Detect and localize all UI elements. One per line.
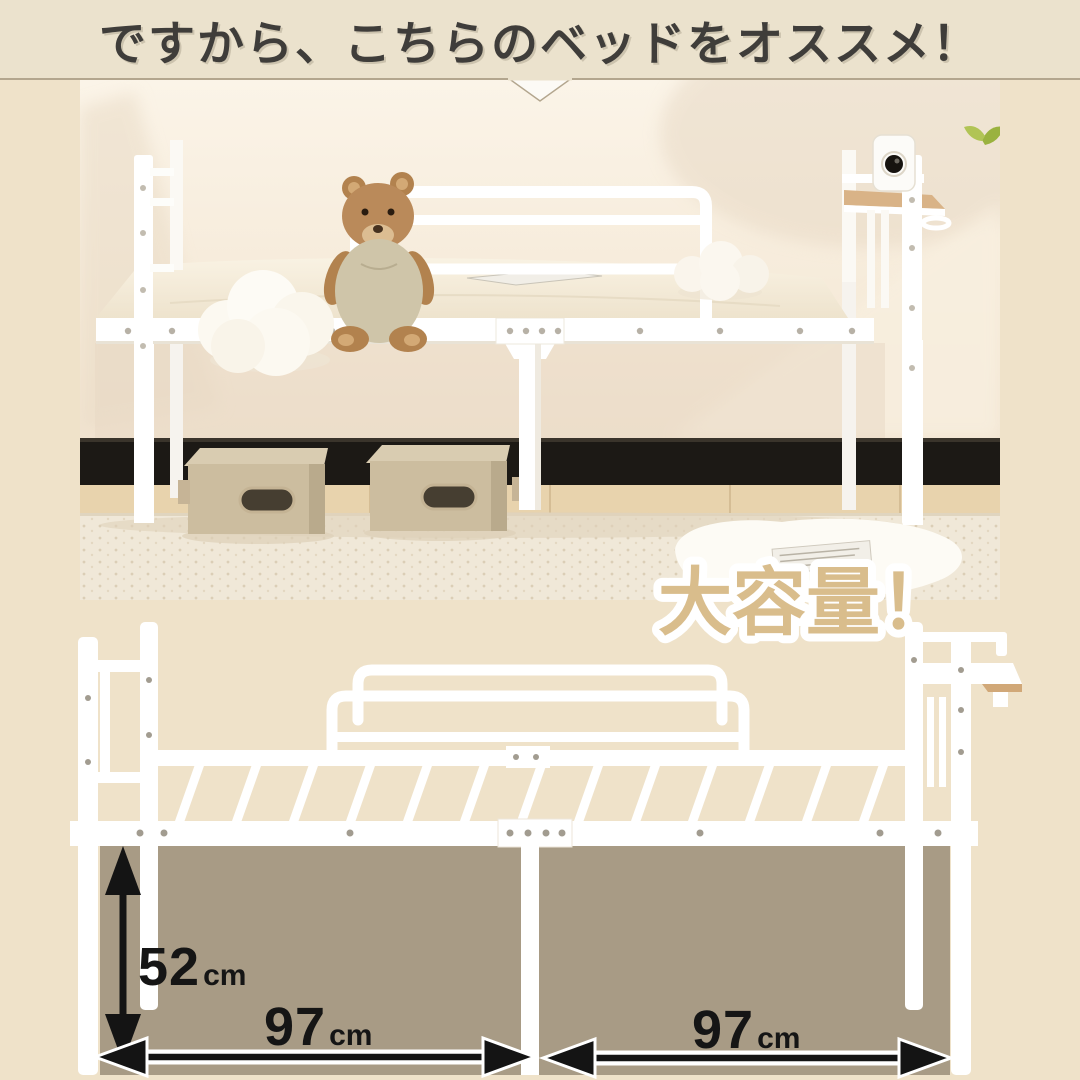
deck-center-plate [496, 318, 564, 344]
width-left-value: 97 [264, 996, 326, 1058]
header-band: ですから、こちらのベッドをオススメ！ [0, 0, 1080, 80]
capacity-badge-text: 大容量！ [658, 561, 954, 644]
diagram-center-leg [521, 846, 539, 1075]
width-label-right: 97cm [692, 999, 800, 1061]
height-label: 52cm [138, 936, 246, 998]
height-unit: cm [203, 959, 246, 993]
product-photo [80, 78, 1000, 600]
dimension-diagram [0, 600, 1080, 1080]
product-ad-page: ですから、こちらのベッドをオススメ！ [0, 0, 1080, 1080]
diagram-headboard-slat [100, 666, 110, 778]
diagram-back-center-plate [506, 746, 550, 768]
width-right-unit: cm [757, 1022, 800, 1056]
speech-tail-triangle [508, 78, 572, 101]
diagram-footboard-slat2 [939, 697, 946, 787]
storage-box-left [178, 448, 334, 544]
baby-monitor-camera [873, 135, 915, 191]
height-value: 52 [138, 936, 200, 998]
diagram-shelf-bracket [993, 692, 1008, 707]
diagram-footboard-slat [927, 697, 934, 787]
capacity-badge: 大容量！ [648, 542, 964, 654]
diagram-headboard-bottom-bar [96, 772, 142, 783]
diagram-footboard-front-post [951, 637, 971, 1075]
diagram-deck-slats [178, 758, 886, 826]
speech-tail [508, 78, 572, 102]
diagram-shelf-wood-edge [982, 684, 1022, 692]
diagram-headboard-front-post [78, 637, 98, 1075]
width-left-unit: cm [329, 1019, 372, 1053]
width-right-value: 97 [692, 999, 754, 1061]
speech-tail-mask [508, 78, 572, 81]
diagram-footboard-arm-end [996, 632, 1007, 656]
center-leg-shade [535, 340, 541, 510]
storage-box-right [364, 445, 524, 541]
width-label-left: 97cm [264, 996, 372, 1058]
headline-text: ですから、こちらのベッドをオススメ！ [99, 5, 981, 74]
